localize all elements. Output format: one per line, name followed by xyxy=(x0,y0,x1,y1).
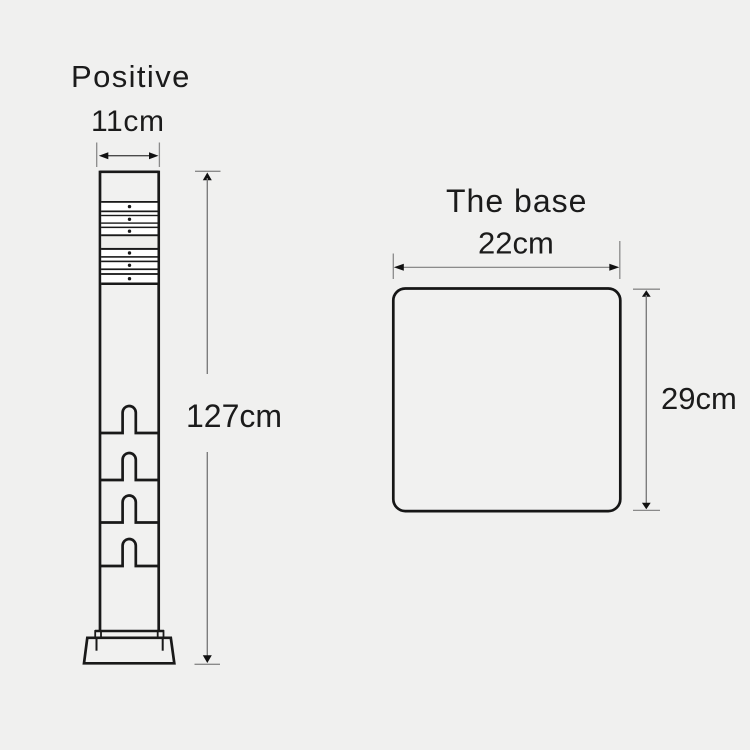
svg-text:Positive: Positive xyxy=(71,59,191,94)
svg-text:11cm: 11cm xyxy=(91,105,165,138)
svg-text:29cm: 29cm xyxy=(661,381,737,416)
svg-text:127cm: 127cm xyxy=(186,398,282,434)
svg-text:The base: The base xyxy=(446,183,587,219)
svg-text:22cm: 22cm xyxy=(478,226,554,261)
